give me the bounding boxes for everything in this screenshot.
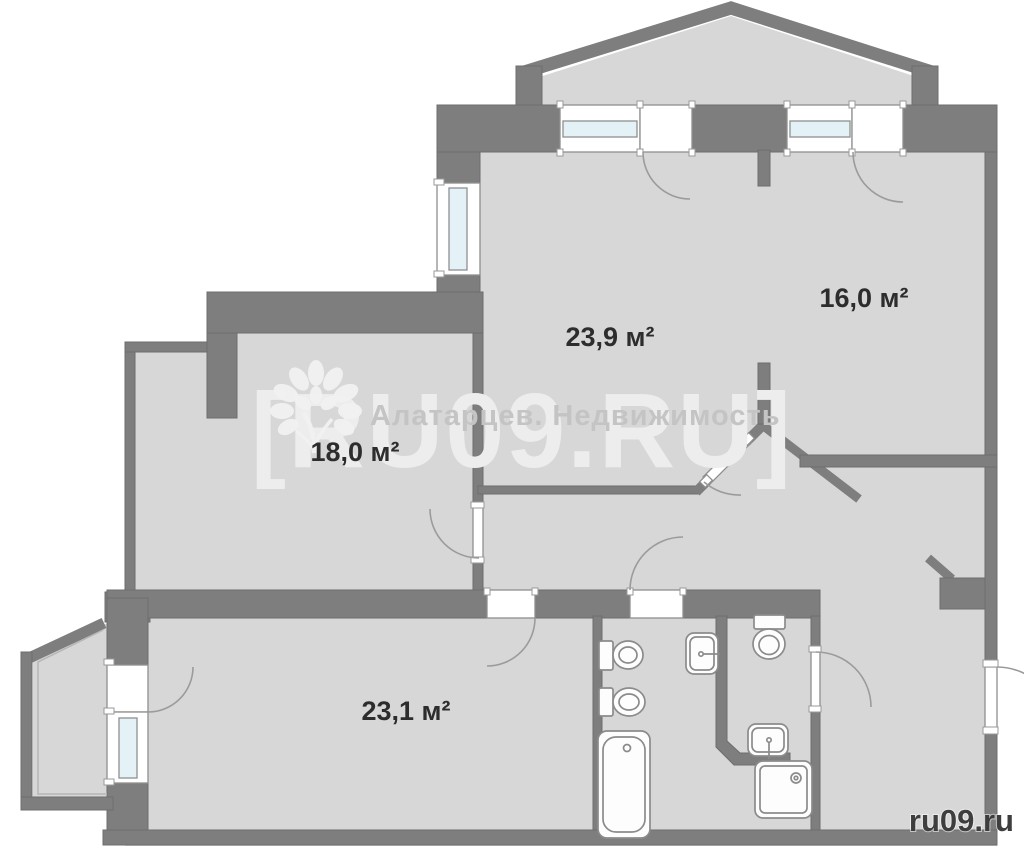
wall-balcony-left <box>21 652 32 804</box>
toilet-icon <box>753 615 785 659</box>
washbasin-icon <box>748 724 788 759</box>
wall-room3-stub <box>207 333 237 418</box>
wall-top-b <box>903 105 997 152</box>
wall-stub-top <box>758 150 770 186</box>
window-room4-glazing <box>119 718 137 778</box>
wall-top-a <box>437 105 560 152</box>
bidet-icon <box>599 688 645 716</box>
wall-left-of-room1-a <box>437 152 480 183</box>
wall-room3-top <box>207 292 483 333</box>
wall-bay-base-right <box>912 66 938 108</box>
door-room3-gap <box>473 507 483 558</box>
entrance-door-gap <box>985 667 997 728</box>
door-wc-gap <box>811 652 820 707</box>
door-bathroom-gap <box>630 590 683 618</box>
wall-hall-band-c <box>683 590 820 618</box>
bathtub-icon <box>598 731 650 838</box>
watermark-agency-text: Алатарцев. Недвижимость <box>370 400 781 432</box>
wall-hall-band-a <box>107 590 487 618</box>
room-label-23-9: 23,9 м² <box>565 322 654 352</box>
wall-balcony-bottom <box>21 797 113 810</box>
wall-right-upper <box>985 152 997 667</box>
wall-sink-icon <box>686 633 720 674</box>
wall-room3-left <box>125 352 135 592</box>
balcony-door-room1 <box>640 105 692 152</box>
room-label-16-0: 16,0 м² <box>819 283 908 313</box>
wall-left-of-room1-b <box>437 275 480 293</box>
wall-fin-block <box>940 578 985 609</box>
wall-room3-topleft <box>125 342 207 352</box>
toilet-icon <box>599 641 643 670</box>
wall-bottom <box>103 830 997 845</box>
wall-room2-bottom <box>800 455 997 467</box>
wall-top-pier <box>690 105 788 152</box>
balcony-door-room4 <box>107 665 148 712</box>
watermark-corner-text: ru09.ru <box>909 803 1014 838</box>
door-room4-gap <box>487 590 535 618</box>
window-room2-glazing <box>790 121 850 137</box>
shower-tray-icon <box>755 761 812 818</box>
room-label-23-1: 23,1 м² <box>361 696 450 726</box>
floor-plan-image: [RU09.RU] Алатарцев. Недвижимость ru09.r… <box>0 0 1024 847</box>
balcony-door-room2 <box>852 105 903 152</box>
window-room1-glazing <box>563 121 637 137</box>
wall-bay-base-left <box>516 66 542 108</box>
wall-left-lower-a <box>107 598 148 665</box>
floor-plan-svg: [RU09.RU] Алатарцев. Недвижимость ru09.r… <box>0 0 1024 847</box>
room-label-18-0: 18,0 м² <box>310 437 399 467</box>
wall-hall-band-b <box>535 590 630 618</box>
window-room1-left-glazing <box>449 188 467 270</box>
